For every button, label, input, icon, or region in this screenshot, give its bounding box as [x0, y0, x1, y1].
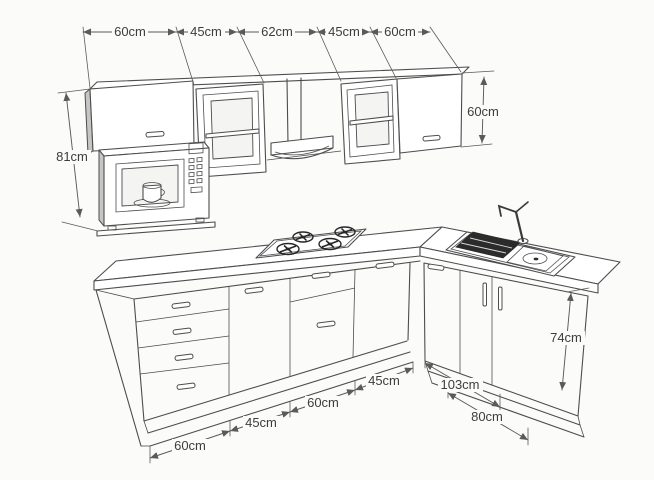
drawer-division-3 — [140, 363, 229, 374]
cabinet1-handle — [146, 131, 164, 137]
cabinet5-door — [397, 74, 462, 153]
microwave — [97, 142, 215, 236]
drawer-handle-3 — [175, 354, 193, 361]
dim-label-left-height: 81cm — [56, 149, 88, 164]
cabinet1-door — [90, 81, 194, 151]
microwave-side — [99, 150, 104, 226]
cabinet5-handle — [423, 135, 440, 141]
dim-label-top-1: 60cm — [114, 24, 146, 39]
base-door-handle — [245, 287, 263, 294]
plinth-step-left-right-run — [428, 371, 432, 383]
drawer-handle-4 — [177, 383, 195, 390]
cooktop-drawer-handle-1 — [312, 272, 330, 279]
dim-label-top-5: 60cm — [384, 24, 416, 39]
base-cabinets-left-run — [94, 227, 442, 446]
drawer-handle-2 — [173, 328, 191, 335]
drawer-division-2 — [138, 336, 229, 348]
dim-label-top-2: 45cm — [190, 24, 222, 39]
sink-door-handle-left — [483, 283, 487, 306]
plinth-step-left — [144, 421, 148, 433]
dim-label-right-height: 60cm — [467, 104, 499, 119]
drawing-canvas: 60cm 45cm 62cm 45cm 60cm 81cm 60cm 60cm … — [0, 0, 654, 480]
corner-panel-handle — [428, 264, 444, 271]
dim-label-top-3: 62cm — [261, 24, 293, 39]
corner-door-handle — [376, 262, 394, 269]
right-face-right-edge — [578, 296, 588, 416]
sink-drain — [534, 258, 539, 261]
kitchen-technical-drawing: 60cm 45cm 62cm 45cm 60cm 81cm 60cm 60cm … — [0, 0, 654, 480]
end-panel-top-edge — [96, 290, 134, 299]
right-face-left-edge — [424, 263, 425, 361]
drawer-handle-1 — [172, 302, 190, 309]
dim-label-bottom-4: 45cm — [368, 373, 400, 388]
dim-label-bottom-2: 45cm — [245, 415, 277, 430]
plinth-corner-right — [578, 416, 584, 437]
dim-label-bottom-1: 60cm — [174, 438, 206, 453]
faucet-lever — [516, 202, 528, 212]
cabinet2-back-panel — [211, 98, 253, 159]
division-cooktop-corner — [353, 270, 355, 357]
sink-door-handle-right — [499, 287, 503, 310]
end-panel-outer-edge — [96, 290, 141, 446]
dim-label-right-run-80: 80cm — [471, 409, 503, 424]
faucet — [499, 202, 528, 244]
dim-label-top-4: 45cm — [328, 24, 360, 39]
face-right-edge — [408, 263, 410, 340]
cooktop-drawer-division — [290, 288, 355, 302]
dim-label-bottom-3: 60cm — [307, 395, 339, 410]
dim-label-counter-height: 74cm — [550, 330, 582, 345]
cooktop-drawer-handle-2 — [317, 321, 335, 328]
dim-label-right-run-103: 103cm — [440, 377, 479, 392]
hood-chimney-left-edge — [287, 79, 288, 144]
drawer-division-1 — [136, 309, 229, 322]
face-left-edge — [134, 299, 144, 421]
